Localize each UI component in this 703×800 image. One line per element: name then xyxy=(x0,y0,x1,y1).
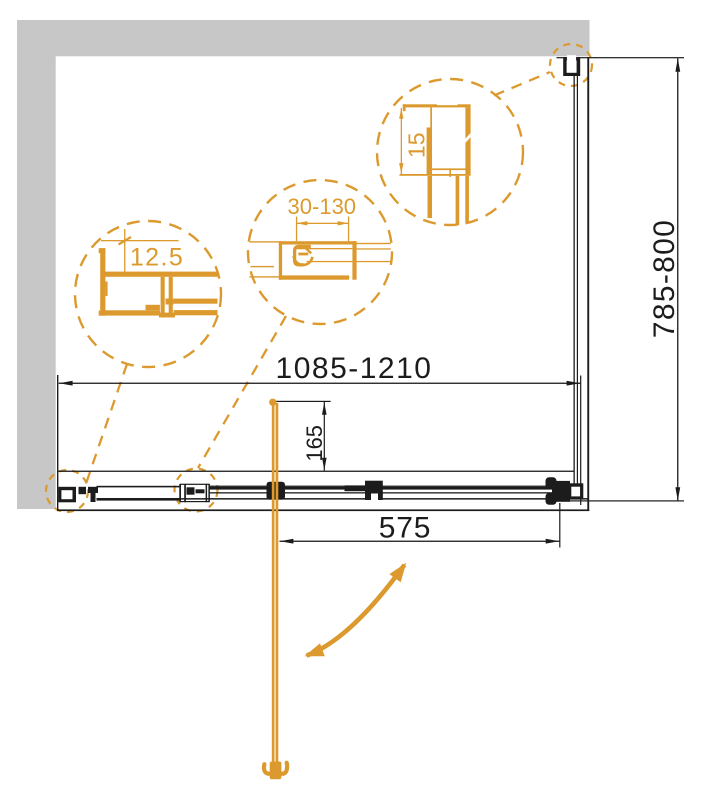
svg-text:1085-1210: 1085-1210 xyxy=(276,352,433,385)
svg-text:575: 575 xyxy=(379,512,431,545)
svg-text:12.5: 12.5 xyxy=(130,243,184,271)
svg-text:30-130: 30-130 xyxy=(288,194,357,219)
svg-text:15: 15 xyxy=(403,133,429,159)
svg-text:785-800: 785-800 xyxy=(648,219,681,338)
svg-text:165: 165 xyxy=(302,425,327,462)
